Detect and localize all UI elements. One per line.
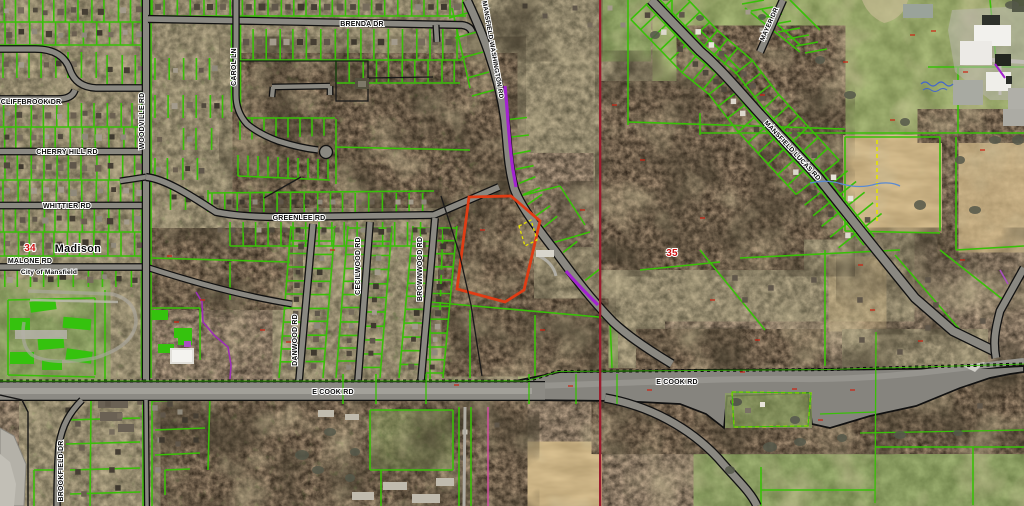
svg-text:GREENLEE RD: GREENLEE RD	[273, 215, 326, 222]
svg-text:34: 34	[24, 243, 36, 254]
svg-text:CLIFFBROOK DR: CLIFFBROOK DR	[1, 99, 62, 106]
svg-text:WHITTIER RD: WHITTIER RD	[43, 203, 91, 210]
svg-text:BROWNWOOD RD: BROWNWOOD RD	[417, 237, 424, 301]
svg-text:E COOK RD: E COOK RD	[312, 389, 353, 396]
svg-text:BRENDA DR: BRENDA DR	[340, 21, 384, 28]
svg-text:MALONE RD: MALONE RD	[8, 258, 52, 265]
svg-text:CHERRY HILL RD: CHERRY HILL RD	[36, 149, 97, 156]
svg-text:CECILWOOD RD: CECILWOOD RD	[355, 237, 362, 295]
svg-text:35: 35	[666, 248, 678, 259]
svg-text:E COOK RD: E COOK RD	[656, 379, 697, 386]
svg-text:CAROL LN: CAROL LN	[231, 48, 238, 86]
svg-text:City of Mansfield: City of Mansfield	[21, 269, 77, 276]
svg-text:DANWOOD RD: DANWOOD RD	[292, 314, 299, 366]
svg-text:WOODVILLE RD: WOODVILLE RD	[139, 93, 146, 150]
svg-text:Madison: Madison	[55, 243, 102, 255]
svg-text:BROOKFIELD DR: BROOKFIELD DR	[58, 441, 65, 502]
